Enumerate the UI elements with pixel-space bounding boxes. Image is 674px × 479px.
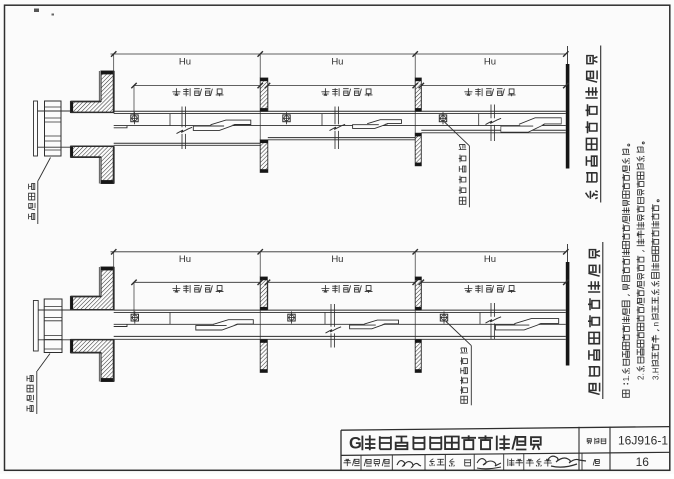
svg-text:n: n [651,322,660,326]
svg-text:H: H [651,367,660,373]
svg-text:Hu: Hu [484,254,496,265]
svg-text:Hu: Hu [484,56,496,67]
svg-text:16J916-1: 16J916-1 [618,434,668,448]
svg-text:Hu: Hu [331,254,343,265]
svg-text:Hu: Hu [179,254,191,265]
svg-text:.: . [637,373,646,375]
svg-text:.: . [622,375,631,377]
svg-text:Hu: Hu [179,56,191,67]
svg-text:16: 16 [636,455,650,469]
svg-text:Hu: Hu [331,56,343,67]
svg-text:G: G [349,434,362,452]
